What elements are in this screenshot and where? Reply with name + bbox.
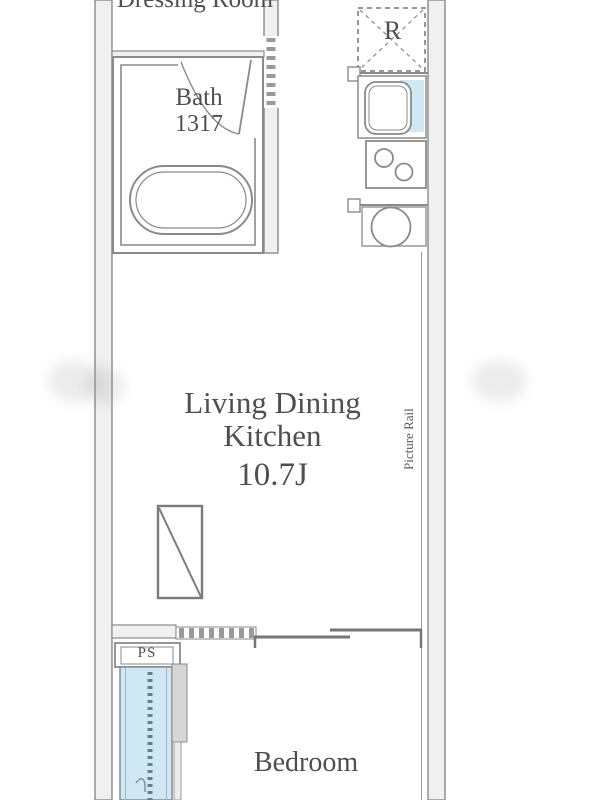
bedroom-door-track — [174, 742, 181, 800]
bath-label: Bath — [128, 84, 270, 111]
sliding-partition — [254, 630, 422, 648]
two-burner-stove — [366, 141, 426, 188]
bedroom-wall-segment — [172, 664, 187, 742]
refrigerator-label: R — [376, 17, 409, 45]
partition-wall-segment — [112, 625, 176, 638]
pipe-space-label: PS — [117, 645, 177, 661]
ldk-label: Living Dining Kitchen — [150, 386, 395, 452]
watermark-smudge — [84, 368, 124, 404]
dressing-room-label: Dressing Room — [115, 0, 275, 13]
watermark-smudge — [472, 360, 526, 402]
picture-rail-label: Picture Rail — [399, 384, 419, 494]
floorplan: Dressing Room Bath 1317 R Living Dining … — [0, 0, 600, 800]
round-kitchen-fixture — [372, 208, 411, 247]
counter-tab-bottom — [348, 199, 360, 212]
ldk-size-label: 10.7J — [150, 458, 395, 494]
bedroom-label: Bedroom — [230, 748, 382, 778]
window-strip — [120, 667, 172, 800]
kitchen-sink — [365, 82, 411, 134]
bath-size-label: 1317 — [128, 112, 270, 138]
right-wall — [428, 0, 445, 800]
storage-rect — [158, 506, 202, 598]
